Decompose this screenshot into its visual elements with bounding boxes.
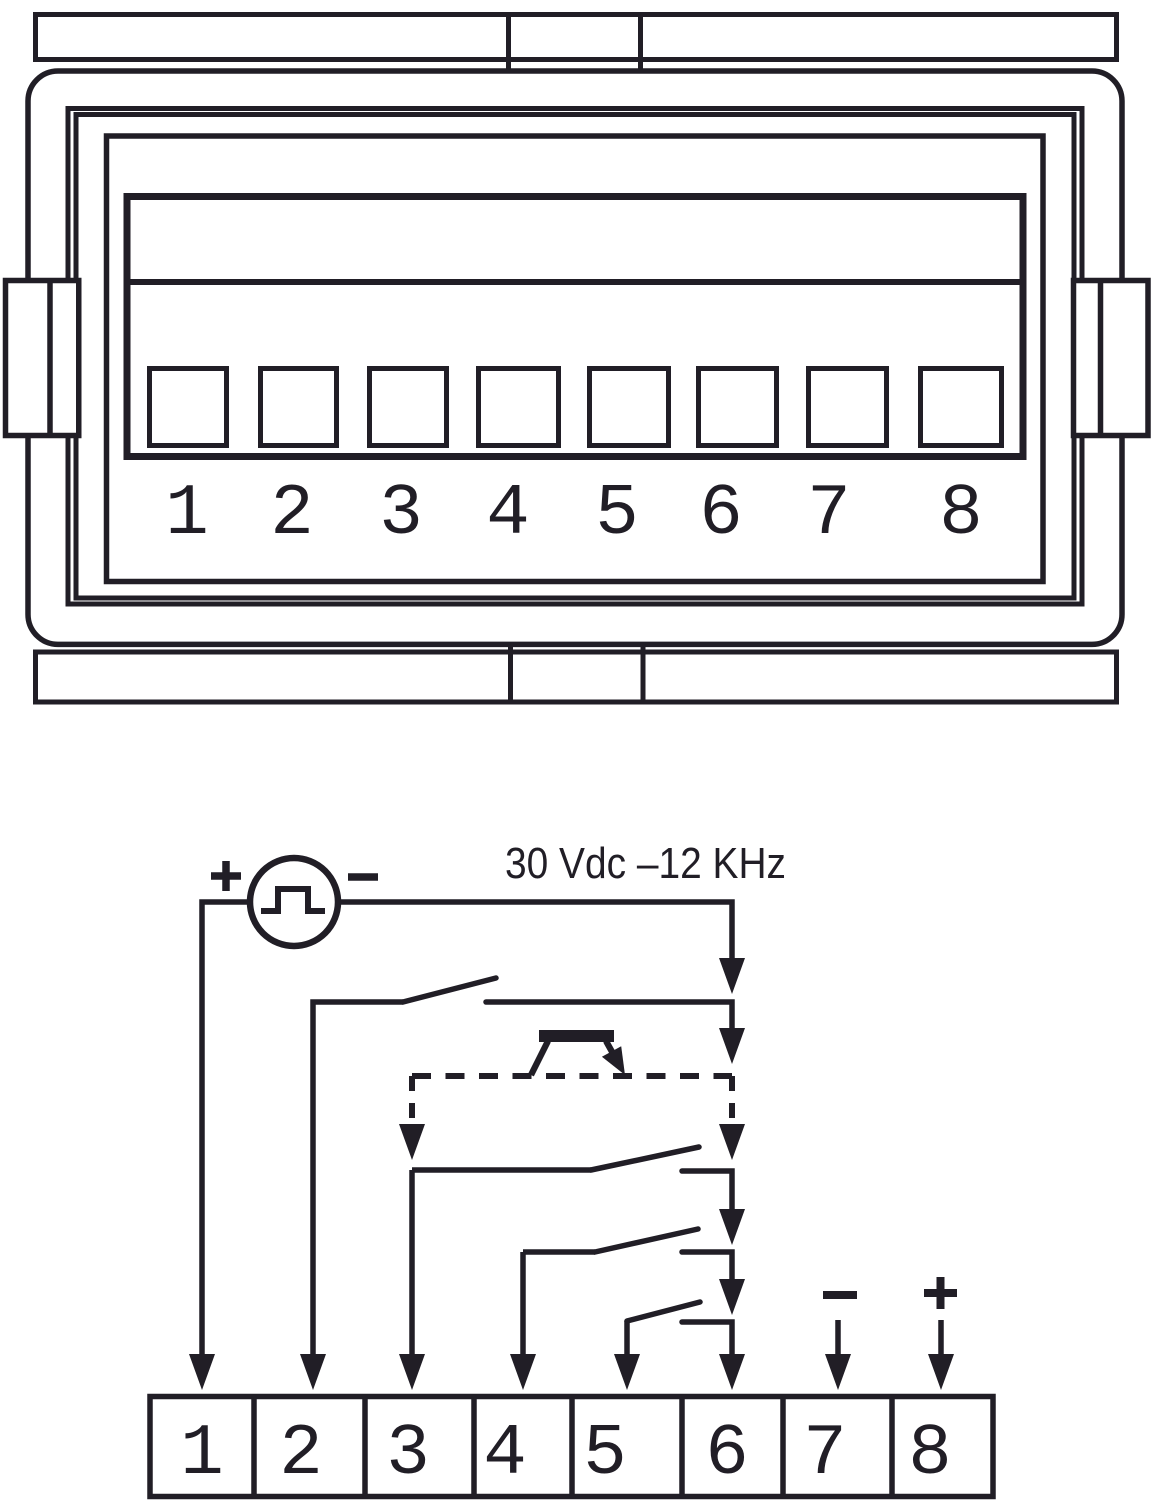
svg-text:1: 1 — [180, 1413, 224, 1495]
svg-text:8: 8 — [939, 473, 983, 555]
svg-text:8: 8 — [908, 1413, 952, 1495]
svg-text:5: 5 — [595, 473, 639, 555]
svg-text:7: 7 — [803, 1413, 847, 1495]
svg-text:3: 3 — [379, 473, 423, 555]
svg-text:3: 3 — [386, 1413, 430, 1495]
svg-text:30 Vdc –12 KHz: 30 Vdc –12 KHz — [505, 839, 786, 888]
svg-text:6: 6 — [705, 1413, 749, 1495]
svg-text:4: 4 — [483, 1413, 527, 1495]
svg-text:1: 1 — [165, 473, 209, 555]
svg-text:7: 7 — [807, 473, 851, 555]
svg-text:5: 5 — [583, 1413, 627, 1495]
svg-text:4: 4 — [486, 473, 530, 555]
svg-text:2: 2 — [279, 1413, 323, 1495]
svg-text:6: 6 — [699, 473, 743, 555]
svg-text:2: 2 — [270, 473, 314, 555]
